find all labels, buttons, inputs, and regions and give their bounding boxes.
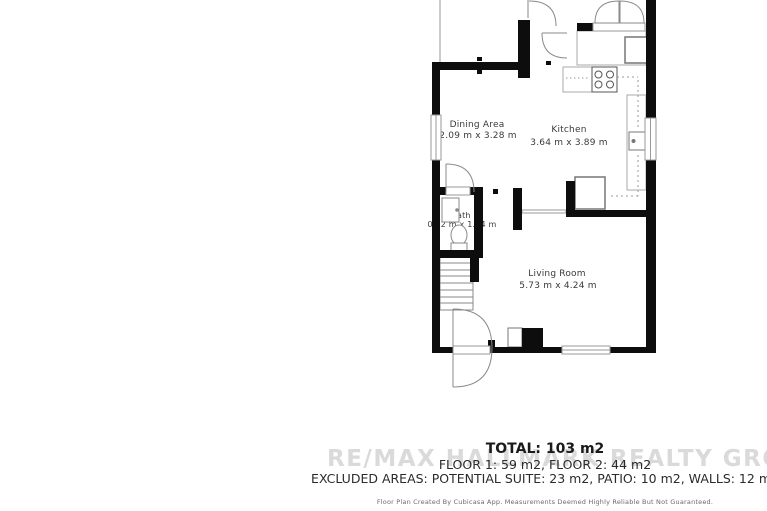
window-left bbox=[431, 115, 441, 160]
stove-icon bbox=[592, 67, 617, 92]
wall-segment bbox=[470, 256, 479, 282]
total-area-text: TOTAL: 103 m2 bbox=[486, 441, 605, 457]
wall-segment bbox=[577, 23, 593, 31]
wall-segment bbox=[474, 187, 483, 257]
entry-door-threshold bbox=[453, 346, 490, 354]
french-doors-arcs bbox=[595, 1, 644, 23]
wall-segment bbox=[566, 210, 650, 217]
cubicasa-disclaimer: Floor Plan Created By Cubicasa App. Meas… bbox=[377, 498, 713, 506]
wall-ticks bbox=[477, 57, 652, 322]
toilet bbox=[451, 225, 467, 251]
window-right bbox=[645, 118, 656, 160]
staircase bbox=[440, 256, 473, 310]
window-bottom bbox=[562, 346, 610, 354]
floor-areas-text: FLOOR 1: 59 m2, FLOOR 2: 44 m2 bbox=[439, 457, 651, 472]
wall-segment bbox=[518, 20, 530, 78]
bath-door-threshold bbox=[446, 187, 470, 195]
hall-door-arc bbox=[528, 0, 556, 26]
floor-plan-drawing bbox=[0, 0, 767, 511]
floor-plan-page: RE/MAX HALLMARK REALTY GROUP, Brokerage … bbox=[0, 0, 767, 511]
wall-segment bbox=[432, 347, 454, 353]
french-door-threshold bbox=[593, 23, 645, 31]
refrigerator-icon bbox=[575, 37, 648, 209]
kitchen-sink bbox=[629, 132, 646, 150]
wall-segment bbox=[432, 62, 530, 70]
wall-segment bbox=[513, 188, 522, 230]
fireplace bbox=[508, 328, 543, 347]
wall-segment bbox=[646, 0, 656, 353]
kitchen-door-arc bbox=[542, 33, 567, 58]
bathroom-sink bbox=[442, 198, 459, 222]
excluded-areas-text: EXCLUDED AREAS: POTENTIAL SUITE: 23 m2, … bbox=[311, 471, 767, 486]
wall-segment bbox=[432, 62, 440, 353]
opening-header-line bbox=[522, 210, 566, 213]
